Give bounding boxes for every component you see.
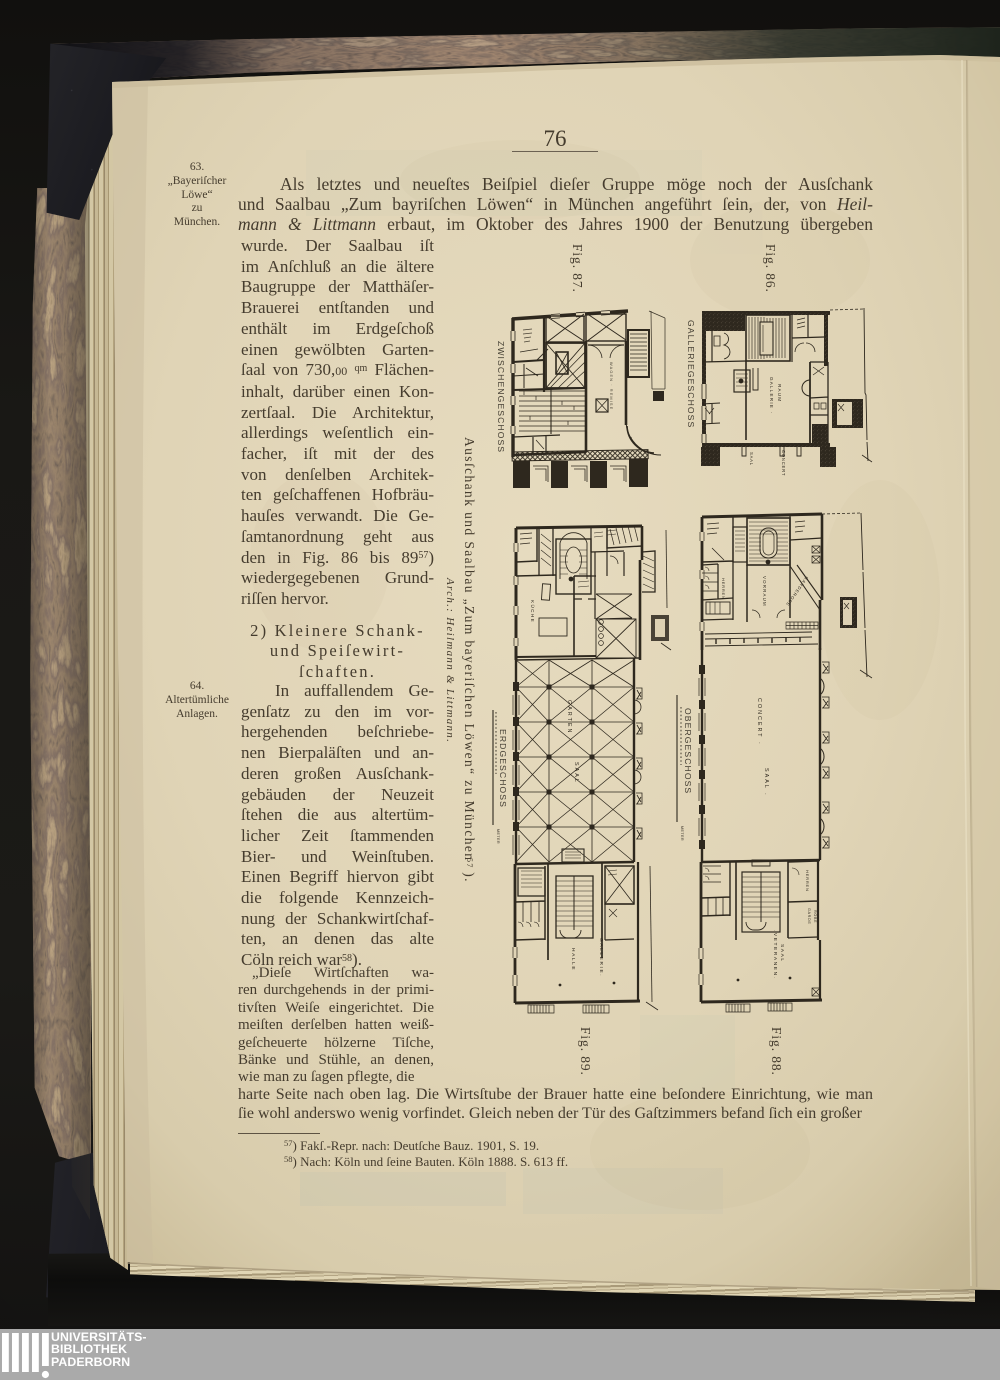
svg-text:GALLERIEGESCHOSS: GALLERIEGESCHOSS	[686, 320, 696, 428]
svg-text:OBERGESCHOSS: OBERGESCHOSS	[683, 708, 693, 794]
svg-text:SAAL: SAAL	[749, 452, 754, 466]
svg-text:GALLERIE.: GALLERIE.	[598, 938, 604, 977]
svg-text:SAAL: SAAL	[573, 762, 579, 784]
svg-text:METER: METER	[496, 829, 500, 844]
svg-text:GARTEN ·: GARTEN ·	[566, 700, 572, 742]
svg-text:WAGEN · REMISE: WAGEN · REMISE	[609, 362, 614, 410]
svg-text:ROBE: ROBE	[813, 910, 817, 923]
svg-text:SAAL: SAAL	[779, 944, 785, 963]
svg-text:CONCERT ·: CONCERT ·	[756, 698, 762, 746]
svg-text:.VETERANEN.: .VETERANEN.	[772, 930, 778, 980]
svg-text:GARDEROBE: GARDEROBE	[785, 575, 810, 607]
svg-text:GALLERIE ·: GALLERIE ·	[769, 377, 774, 414]
svg-text:HERREN: HERREN	[805, 870, 810, 892]
svg-text:ZWISCHENGESCHOSS: ZWISCHENGESCHOSS	[496, 341, 506, 453]
svg-text:ERDGESCHOSS: ERDGESCHOSS	[498, 729, 508, 808]
svg-text:VORRAUM: VORRAUM	[762, 576, 767, 607]
svg-text:GARDE: GARDE	[807, 908, 811, 925]
svg-text:SAAL .: SAAL .	[763, 768, 769, 797]
svg-text:CONCERT: CONCERT	[781, 450, 786, 476]
svg-text:HERREN: HERREN	[721, 578, 726, 600]
svg-text:METER: METER	[680, 826, 684, 841]
svg-text:HALLE: HALLE	[570, 948, 576, 971]
svg-text:RAUM: RAUM	[777, 384, 782, 402]
svg-text:KÜCHE: KÜCHE	[530, 600, 536, 623]
